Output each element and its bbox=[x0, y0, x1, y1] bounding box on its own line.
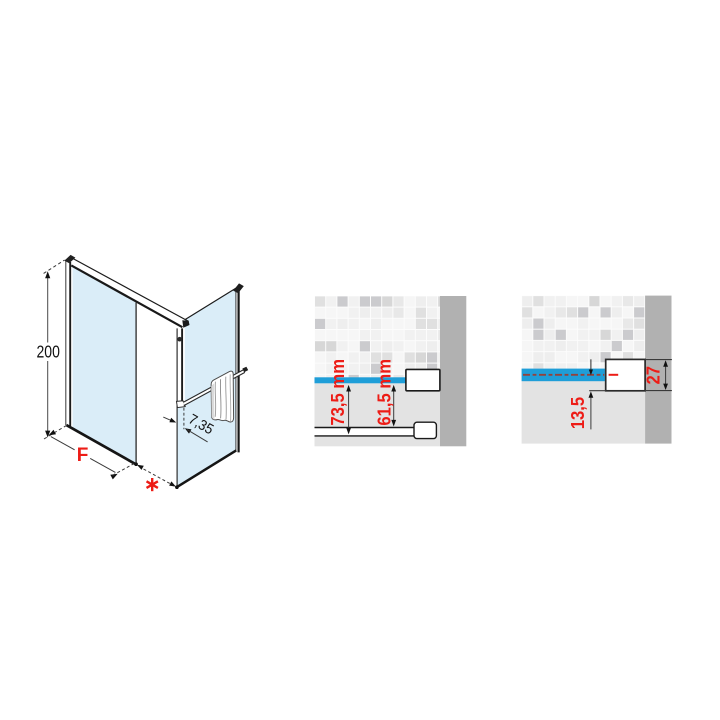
svg-text:61,5 mm: 61,5 mm bbox=[374, 359, 395, 426]
svg-text:27: 27 bbox=[643, 366, 664, 385]
svg-text:F: F bbox=[77, 445, 89, 466]
svg-text:13,5: 13,5 bbox=[567, 397, 588, 430]
svg-text:200: 200 bbox=[37, 343, 61, 362]
svg-text:73,5 mm: 73,5 mm bbox=[327, 359, 348, 426]
